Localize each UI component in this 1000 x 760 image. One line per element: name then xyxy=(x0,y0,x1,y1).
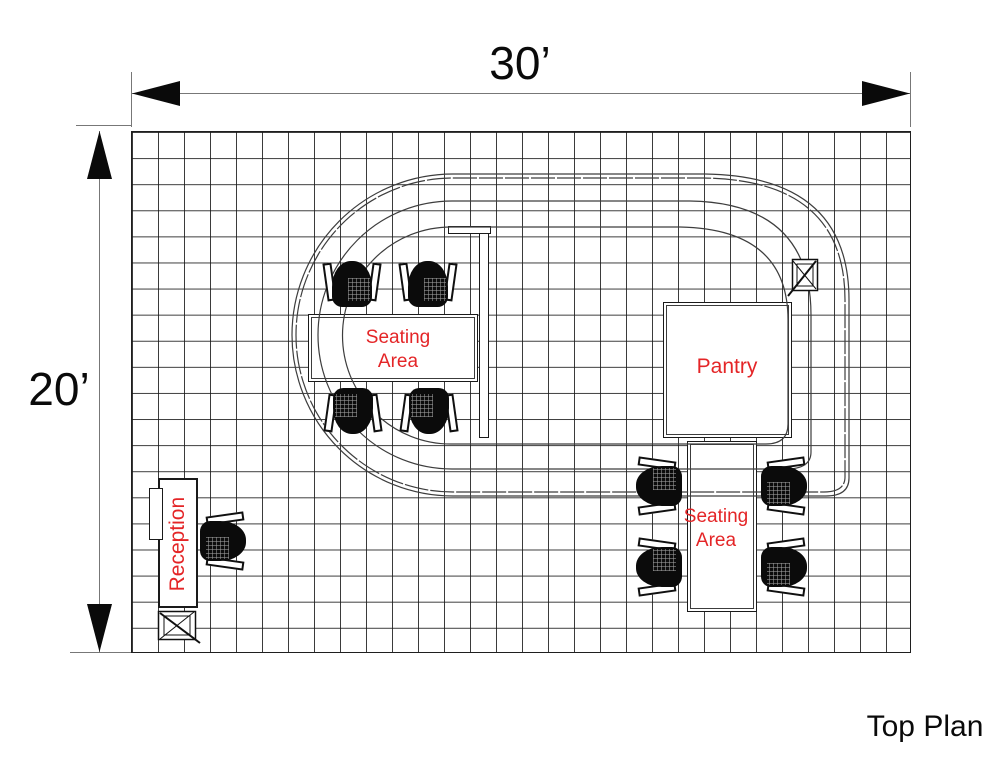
chair-back xyxy=(761,547,807,587)
chair-seat-pattern xyxy=(424,278,446,301)
plan-title: Top Plan xyxy=(845,710,1000,744)
divider-panel xyxy=(479,233,489,438)
chair xyxy=(326,386,380,434)
chair-seat-pattern xyxy=(411,394,433,417)
chair-seat-pattern xyxy=(206,537,229,559)
chair xyxy=(402,386,456,434)
reception-shelf xyxy=(149,488,163,540)
floor-plan-canvas: Seating Area Pantry Seating Area Recepti… xyxy=(0,0,1000,760)
arrow-right-icon xyxy=(862,81,910,106)
arrow-up-icon xyxy=(87,131,112,179)
chair xyxy=(759,540,807,594)
chair-back xyxy=(761,466,807,506)
width-dimension-text: 30’ xyxy=(425,36,615,90)
chair xyxy=(759,459,807,513)
chair-back xyxy=(332,261,372,307)
chair-back xyxy=(636,547,682,587)
chair-back xyxy=(409,388,449,434)
chair-back xyxy=(408,261,448,307)
chair-seat-pattern xyxy=(767,563,790,585)
chair-seat-pattern xyxy=(335,394,357,417)
chair xyxy=(325,261,379,309)
height-dimension-text: 20’ xyxy=(14,362,104,416)
chair-seat-pattern xyxy=(767,482,790,504)
arrow-left-icon xyxy=(132,81,180,106)
pantry-label: Pantry xyxy=(667,354,787,380)
seating-area-1-label: Seating Area xyxy=(355,326,441,374)
reception-chair xyxy=(198,514,246,568)
chair-back xyxy=(636,466,682,506)
reception-label: Reception xyxy=(165,479,191,609)
seating-area-2-label: Seating Area xyxy=(673,505,759,553)
arrow-down-icon xyxy=(87,604,112,652)
chair xyxy=(401,261,455,309)
chair-seat-pattern xyxy=(653,468,676,490)
chair-back xyxy=(333,388,373,434)
chair-seat-pattern xyxy=(348,278,370,301)
chair-back xyxy=(200,521,246,561)
